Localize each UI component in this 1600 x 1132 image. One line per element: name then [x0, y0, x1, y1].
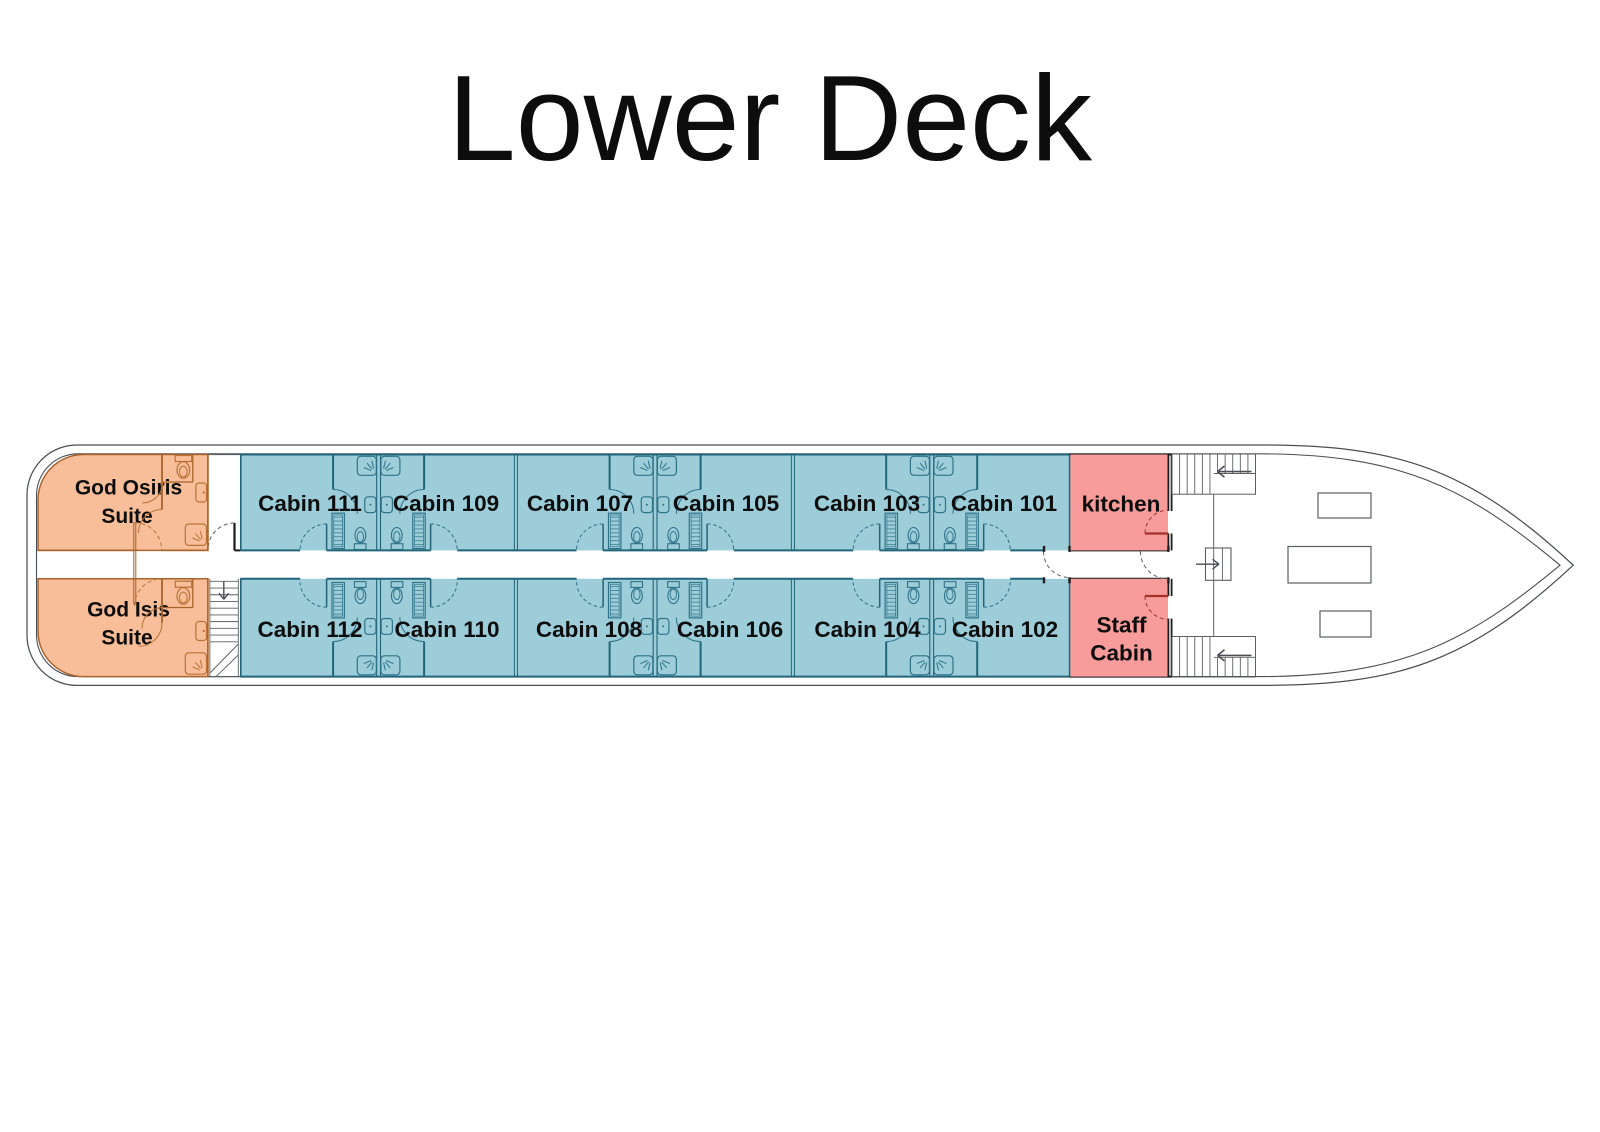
svg-text:Cabin 102: Cabin 102 [952, 617, 1058, 642]
svg-text:Cabin 101: Cabin 101 [951, 491, 1057, 516]
svg-text:Cabin 106: Cabin 106 [677, 617, 783, 642]
svg-text:Cabin 109: Cabin 109 [393, 491, 499, 516]
svg-text:Cabin 111: Cabin 111 [258, 491, 362, 516]
svg-text:Cabin 104: Cabin 104 [814, 617, 921, 642]
svg-text:Suite: Suite [101, 627, 152, 650]
svg-text:Cabin 112: Cabin 112 [257, 617, 362, 642]
svg-text:Cabin 108: Cabin 108 [536, 617, 642, 642]
svg-text:Cabin 107: Cabin 107 [527, 491, 633, 516]
svg-text:God Osiris: God Osiris [75, 477, 182, 500]
svg-text:God Isis: God Isis [87, 599, 170, 622]
svg-text:Staff: Staff [1097, 612, 1148, 637]
svg-text:Cabin 105: Cabin 105 [673, 491, 779, 516]
svg-text:Lower Deck: Lower Deck [448, 50, 1093, 186]
svg-text:kitchen: kitchen [1082, 492, 1161, 517]
svg-text:Cabin: Cabin [1090, 640, 1153, 665]
svg-text:Cabin 103: Cabin 103 [814, 491, 920, 516]
svg-text:Cabin 110: Cabin 110 [394, 617, 499, 642]
